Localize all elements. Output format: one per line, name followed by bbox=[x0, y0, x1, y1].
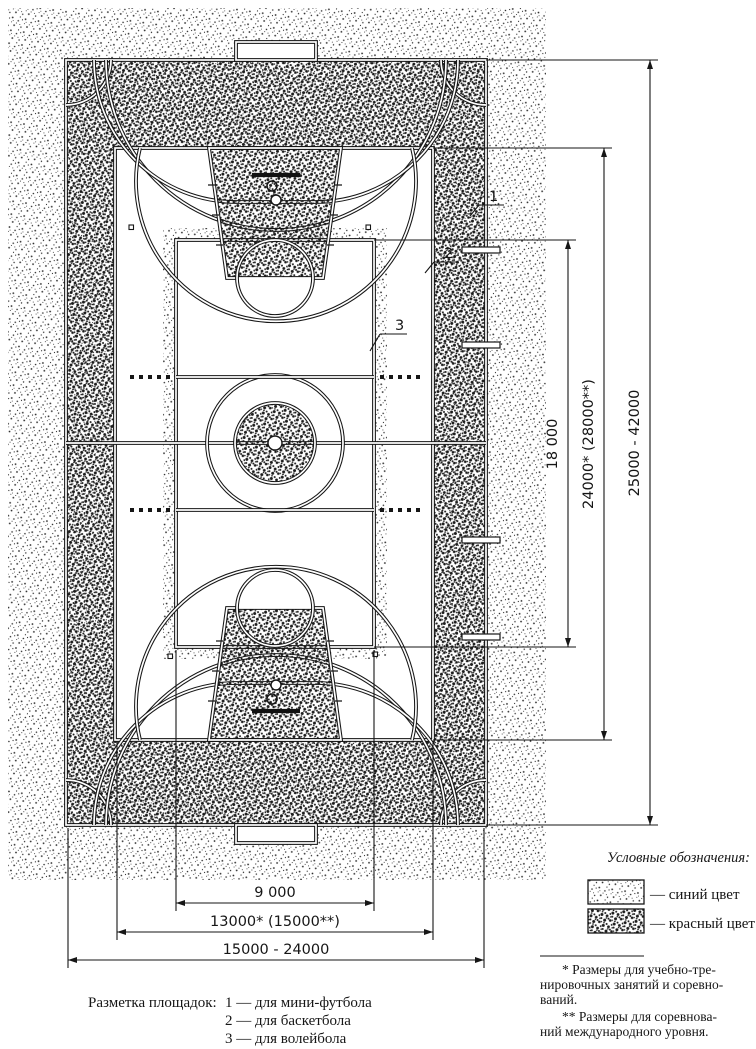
legend-swatch-blue bbox=[588, 880, 644, 904]
caption-item-3: 3 — для волейбола bbox=[225, 1031, 347, 1047]
caption-intro: Разметка площадок: bbox=[88, 995, 217, 1011]
legend-swatch-red bbox=[588, 909, 644, 933]
key-top bbox=[209, 148, 341, 278]
goal-bottom bbox=[236, 825, 316, 843]
callout-2-basketball: 2 bbox=[444, 246, 453, 262]
callout-3-volleyball: 3 bbox=[395, 318, 404, 334]
footnote-line-5: ний международного уровня. bbox=[540, 1024, 708, 1039]
center-spot bbox=[268, 436, 282, 450]
penalty-mark-top bbox=[271, 195, 281, 205]
dim-label-13000: 13000* (15000**) bbox=[210, 914, 340, 930]
dim-label-15000-24000: 15000 - 24000 bbox=[223, 942, 330, 958]
callout-1-football: 1 bbox=[489, 189, 498, 205]
legend: Условные обозначения: — синий цвет — кра… bbox=[588, 850, 755, 933]
footnote-line-3: ваний. bbox=[540, 992, 577, 1007]
legend-label-red: — красный цвет bbox=[649, 916, 755, 932]
key-bottom bbox=[209, 608, 341, 740]
footnotes: * Размеры для учебно-тре- нировочных зан… bbox=[540, 956, 724, 1039]
legend-label-blue: — синий цвет bbox=[649, 887, 740, 903]
penalty-mark-bottom bbox=[271, 680, 281, 690]
drawing-canvas: 18 000 24000* (28000**) 25000 - 42000 9 … bbox=[0, 0, 756, 1049]
footnote-line-4: ** Размеры для соревнова- bbox=[562, 1009, 717, 1024]
footnote-line-1: * Размеры для учебно-тре- bbox=[562, 962, 716, 977]
caption-item-1: 1 — для мини-футбола bbox=[225, 995, 372, 1011]
footnote-line-2: нировочных занятий и соревно- bbox=[540, 977, 724, 992]
dim-label-18000: 18 000 bbox=[545, 419, 561, 470]
caption-item-2: 2 — для баскетбола bbox=[225, 1013, 351, 1029]
goal-top bbox=[236, 42, 316, 60]
dim-label-9000: 9 000 bbox=[254, 885, 296, 901]
caption: Разметка площадок: 1 — для мини-футбола … bbox=[88, 995, 372, 1047]
dim-label-25000-42000: 25000 - 42000 bbox=[627, 390, 643, 497]
legend-title: Условные обозначения: bbox=[607, 850, 750, 866]
playground-marking-drawing: 18 000 24000* (28000**) 25000 - 42000 9 … bbox=[0, 0, 756, 1049]
dim-label-24000: 24000* (28000**) bbox=[581, 379, 597, 509]
